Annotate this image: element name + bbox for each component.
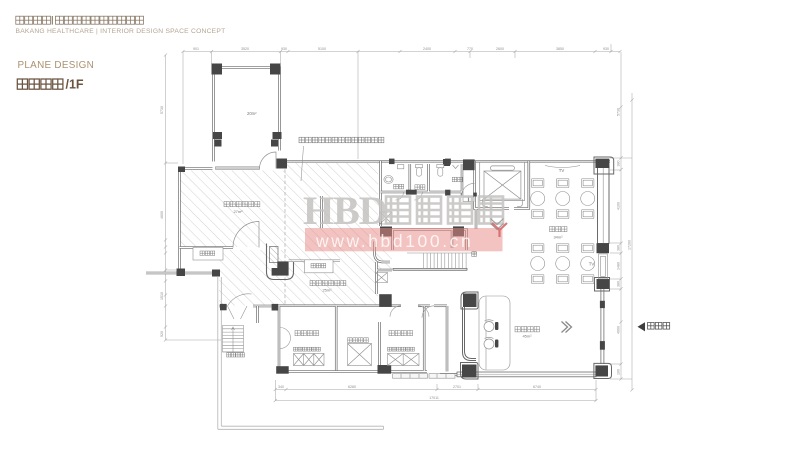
svg-text:380: 380 bbox=[616, 161, 620, 167]
svg-text:2600: 2600 bbox=[496, 47, 504, 51]
svg-text:4600: 4600 bbox=[160, 211, 164, 219]
svg-text:45m²: 45m² bbox=[522, 334, 532, 339]
svg-text:BAKANG HEALTHCARE | INTERIOR D: BAKANG HEALTHCARE | INTERIOR DESIGN SPAC… bbox=[16, 28, 226, 35]
svg-text:www.hbd100.cn: www.hbd100.cn bbox=[315, 231, 473, 251]
svg-text:TV: TV bbox=[559, 168, 565, 173]
svg-text:901: 901 bbox=[193, 47, 199, 51]
svg-text:34m²: 34m² bbox=[553, 235, 563, 240]
svg-text:4100: 4100 bbox=[616, 202, 620, 210]
svg-text:27m²: 27m² bbox=[233, 209, 243, 214]
svg-text:3850: 3850 bbox=[556, 47, 564, 51]
svg-text:TV: TV bbox=[589, 262, 595, 267]
svg-text:1510: 1510 bbox=[160, 292, 164, 300]
svg-text:17260: 17260 bbox=[627, 240, 631, 250]
svg-text:PLANE DESIGN: PLANE DESIGN bbox=[18, 60, 95, 71]
svg-text:380: 380 bbox=[616, 245, 620, 251]
svg-text:6280: 6280 bbox=[348, 385, 356, 389]
svg-text:HBD: HBD bbox=[303, 188, 387, 233]
svg-text:3520: 3520 bbox=[241, 47, 249, 51]
svg-text:380: 380 bbox=[616, 281, 620, 287]
svg-text:5100: 5100 bbox=[318, 47, 326, 51]
svg-text:/1F: /1F bbox=[66, 78, 84, 92]
svg-text:25m²: 25m² bbox=[322, 288, 332, 293]
svg-text:340: 340 bbox=[278, 385, 284, 389]
svg-text:4600: 4600 bbox=[616, 326, 620, 334]
svg-text:5730: 5730 bbox=[616, 108, 620, 116]
svg-text:100: 100 bbox=[616, 369, 620, 375]
svg-text:6740: 6740 bbox=[533, 385, 541, 389]
svg-text:2701: 2701 bbox=[453, 385, 461, 389]
svg-text:20m²: 20m² bbox=[247, 111, 257, 116]
svg-text:770: 770 bbox=[467, 47, 473, 51]
svg-text:930: 930 bbox=[603, 47, 609, 51]
svg-text:920: 920 bbox=[160, 331, 164, 337]
svg-text:17011: 17011 bbox=[429, 396, 439, 400]
svg-text:5730: 5730 bbox=[160, 106, 164, 114]
svg-text:930: 930 bbox=[281, 47, 287, 51]
svg-text:1480: 1480 bbox=[616, 262, 620, 270]
svg-text:2400: 2400 bbox=[423, 47, 431, 51]
